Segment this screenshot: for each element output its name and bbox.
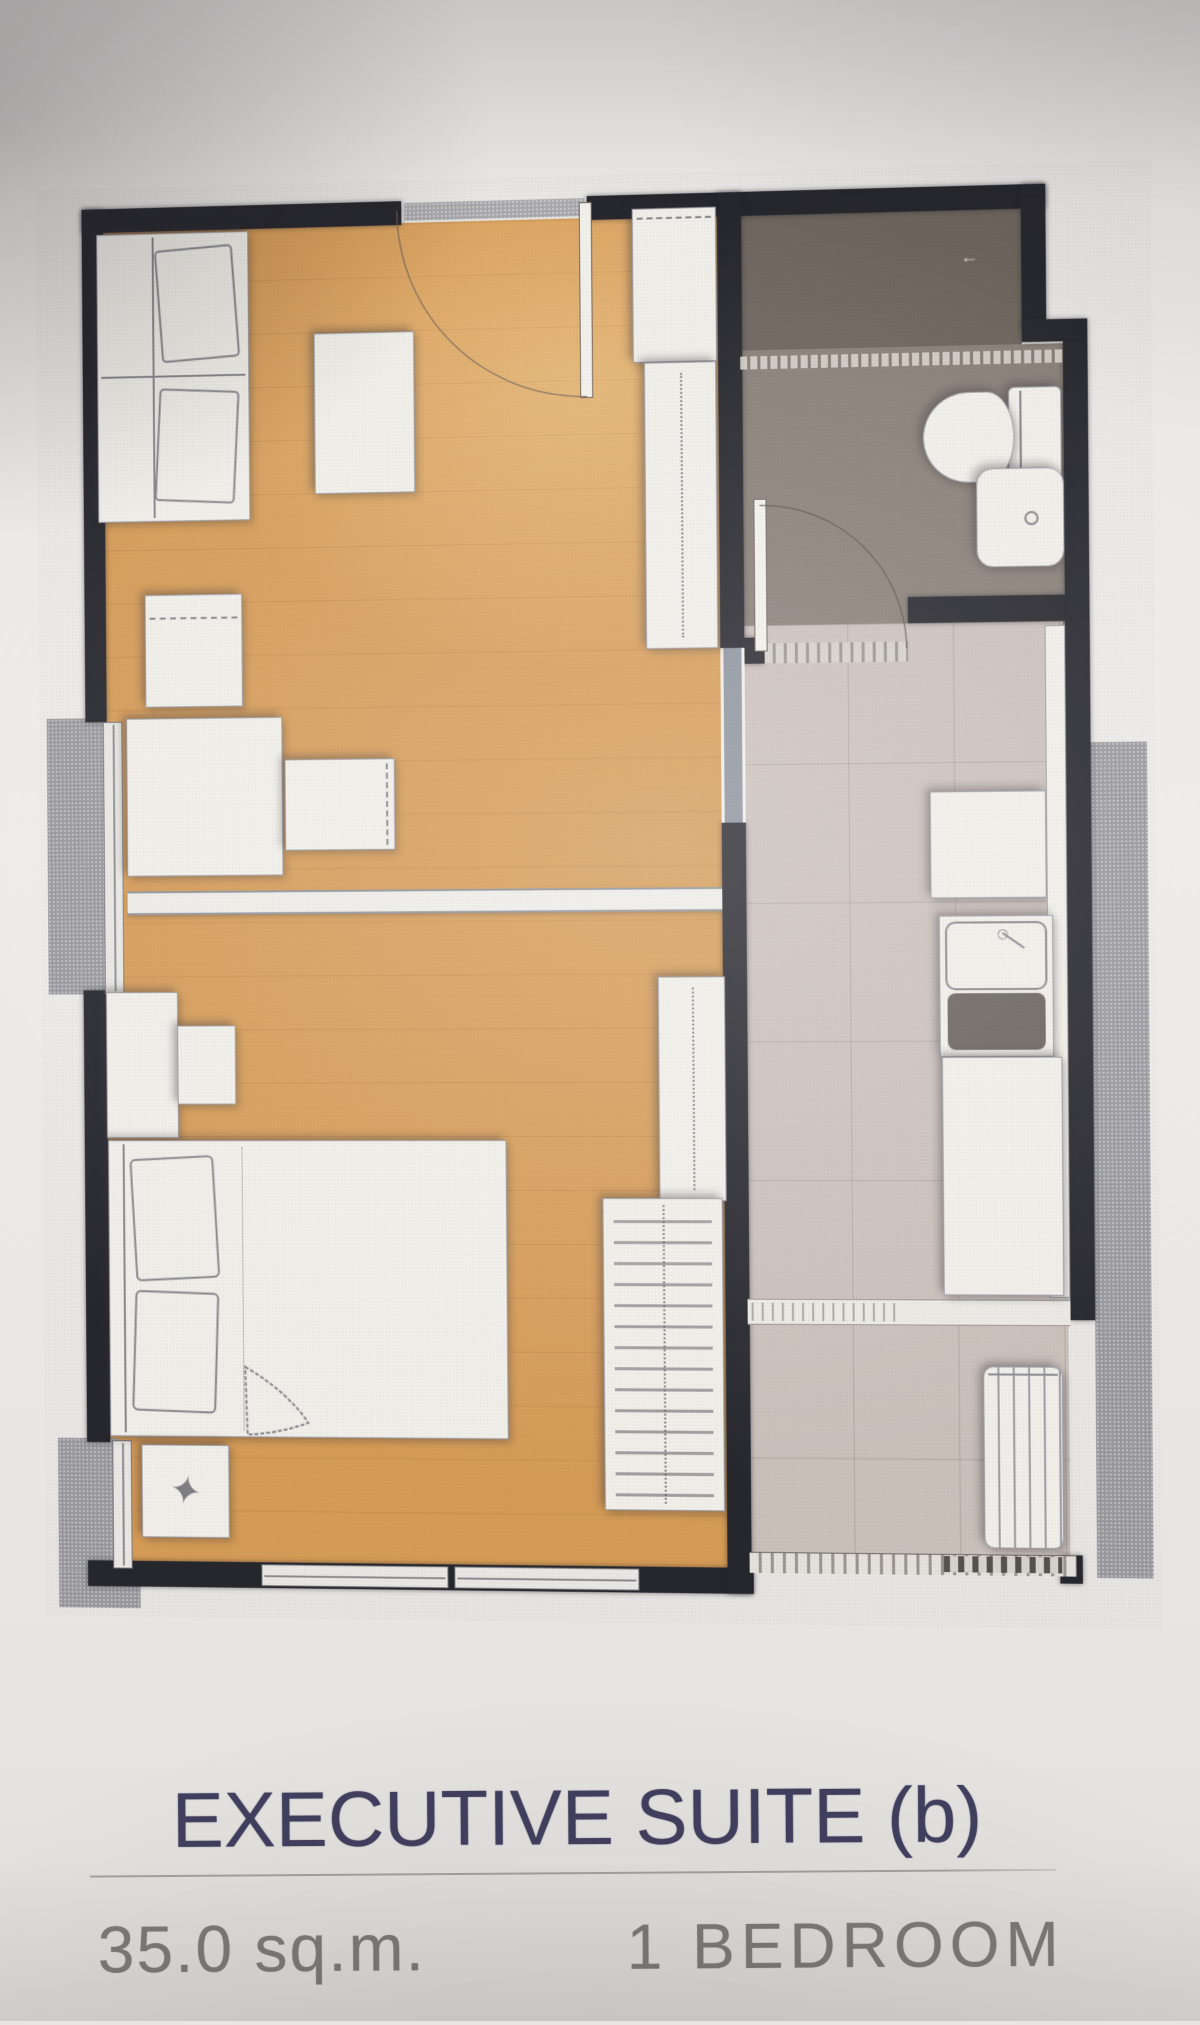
- shelf-unit: [658, 976, 727, 1201]
- bathroom-shower-floor: [739, 207, 1022, 355]
- pillow: [132, 1290, 219, 1414]
- double-bed: [108, 1140, 509, 1439]
- sofa-divider-line: [101, 374, 245, 379]
- clothes-hangers: [614, 1207, 714, 1502]
- caption-block: EXECUTIVE SUITE (b) 35.0 sq.m. 1 BEDROOM: [0, 1676, 1200, 2025]
- wall-bathroom-step: [1022, 318, 1088, 342]
- stool-sketch-line: [386, 763, 389, 845]
- coffee-table: [314, 331, 416, 494]
- photo-background: ✦ ← EXECUTIVE SUITE (b) 35.0 sq.m.: [0, 0, 1200, 2021]
- kitchen-sliding-door: [720, 648, 746, 823]
- stool: [285, 758, 396, 850]
- balcony-railing-detail: [944, 1556, 1063, 1574]
- side-unit-sketch-line: [150, 616, 238, 619]
- sofa-cushion: [155, 388, 240, 503]
- tv-console: [644, 361, 718, 649]
- duvet-fold-sketch: [237, 1339, 336, 1439]
- basin-drain-icon: [1024, 511, 1038, 525]
- kitchen-sink-unit: [939, 915, 1054, 1057]
- hob: [948, 993, 1046, 1050]
- floor-plan: ✦ ←: [5, 0, 1200, 1689]
- sofa: [96, 231, 250, 523]
- kitchen-counter-lower: [942, 1057, 1064, 1296]
- shoe-cabinet: [632, 207, 717, 363]
- sofa-cushion: [154, 244, 240, 364]
- balcony-ledge-left-lower: [58, 1438, 119, 1573]
- washing-machine-top-line: [988, 1373, 1058, 1375]
- wall-living-right-upper: [717, 192, 745, 648]
- decor-icon: ✦: [166, 1468, 206, 1514]
- shower-head-icon: ←: [960, 246, 1001, 267]
- headboard-line: [123, 1144, 127, 1432]
- bedroom-balcony-window: [112, 1440, 132, 1568]
- desk: [126, 717, 283, 877]
- wardrobe: [602, 1198, 725, 1511]
- kitchen-sink: [945, 921, 1048, 990]
- cabinet-sketch-line: [637, 216, 711, 220]
- pillow: [129, 1155, 220, 1282]
- wall-bathroom-right-upper: [1021, 184, 1047, 330]
- corner-table: ✦: [141, 1444, 229, 1538]
- room-divider-partition: [127, 887, 722, 915]
- washing-machine: [983, 1366, 1064, 1549]
- wall-bathroom-bottom: [908, 595, 1065, 624]
- bedroom-window-2: [454, 1566, 639, 1590]
- balcony-ledge-left-upper: [47, 718, 109, 994]
- side-unit: [145, 594, 243, 708]
- bedroom-window-1: [261, 1564, 448, 1588]
- nightstand: [106, 992, 179, 1138]
- caption-divider-line: [90, 1869, 1056, 1878]
- bedside-box: [177, 1025, 236, 1104]
- wash-basin: [976, 467, 1065, 568]
- faucet-icon: [1002, 932, 1025, 949]
- area-label: 35.0 sq.m.: [97, 1909, 426, 1987]
- shelf-sketch-line: [691, 988, 695, 1191]
- sofa-back-line: [152, 237, 156, 517]
- living-balcony-window: [103, 722, 125, 994]
- plan-title: EXECUTIVE SUITE (b): [171, 1769, 982, 1866]
- kitchen-cabinet: [930, 790, 1047, 898]
- bedroom-count-label: 1 BEDROOM: [626, 1907, 1065, 1984]
- ac-ledge-right: [1091, 742, 1154, 1579]
- console-sketch-line: [680, 373, 684, 638]
- kitchen-balcony-divider: [748, 1299, 1071, 1327]
